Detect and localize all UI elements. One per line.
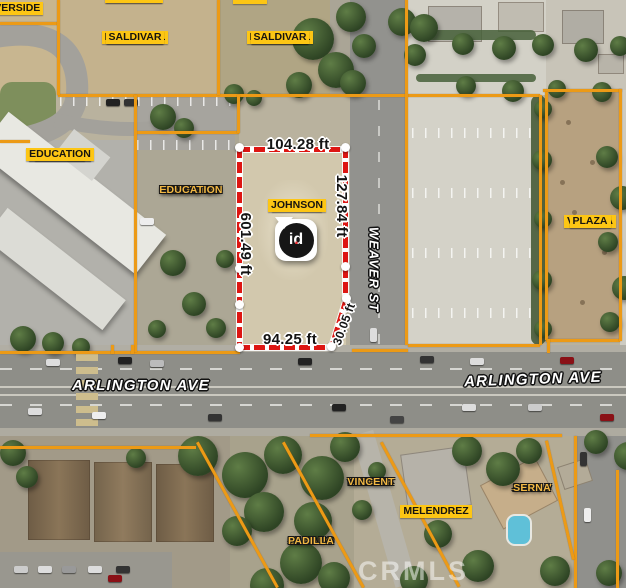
tree: [246, 90, 262, 106]
endpoint-dot: [341, 143, 350, 152]
tree: [452, 33, 474, 55]
label-line: JOHNSON: [268, 199, 326, 212]
car: [580, 452, 587, 466]
car: [150, 360, 164, 367]
tree: [600, 312, 620, 332]
car: [470, 358, 484, 365]
car: [46, 359, 60, 366]
parcel-line: [352, 349, 408, 352]
parcel-line: [619, 89, 622, 341]
parcel-line: [547, 339, 550, 353]
label-line: PLAZA: [570, 215, 611, 228]
parcel-line: [543, 89, 622, 92]
apartment-roof: [156, 464, 214, 542]
parcel-line: [405, 0, 408, 345]
parcel-line: [131, 345, 134, 354]
tree: [486, 452, 520, 486]
dimension-bottom: 94.25 ft: [252, 331, 328, 348]
endpoint-dot: [235, 300, 244, 309]
tree: [610, 36, 626, 56]
tree: [340, 70, 366, 96]
dimension-right: 127.84 ft: [334, 160, 350, 252]
dirt-speckle: [566, 120, 571, 125]
tree: [160, 250, 186, 276]
street-label-weaver: WEAVER ST: [367, 227, 382, 313]
label-line: SERNA: [513, 482, 551, 496]
car: [118, 357, 132, 364]
car: [420, 356, 434, 363]
tree: [574, 38, 598, 62]
car: [106, 99, 120, 106]
car: [208, 414, 222, 421]
parcel-line: [237, 95, 240, 133]
dirt-speckle: [580, 300, 585, 305]
parcel-line: [546, 339, 620, 342]
tree: [534, 320, 552, 338]
parking-stalls: [412, 188, 538, 198]
car: [116, 566, 130, 573]
parcel-line: [111, 345, 114, 354]
label-line: EDUCATION: [26, 148, 94, 161]
tree: [584, 430, 608, 454]
tree: [532, 150, 552, 170]
tree: [540, 556, 570, 586]
tree: [216, 250, 234, 268]
apartment-roof: [28, 460, 90, 540]
label-line: EDUCATION: [159, 184, 222, 198]
parcel-line: [0, 22, 58, 25]
pin-tail: [275, 217, 293, 229]
car: [600, 414, 614, 421]
street-label-arlington-west: ARLINGTON AVE: [72, 377, 210, 394]
tree: [148, 320, 166, 338]
parcel-line: [539, 95, 542, 345]
car: [560, 357, 574, 364]
parcel-line: [58, 94, 540, 97]
car: [28, 408, 42, 415]
car: [140, 218, 154, 225]
tree: [0, 440, 26, 466]
satellite-parcel-map: 104.28 ft 94.25 ft 601.49 ft 127.84 ft 3…: [0, 0, 626, 588]
parking-stalls: [60, 96, 232, 106]
tree: [126, 448, 146, 468]
tree: [410, 14, 438, 42]
parcel-line: [616, 470, 619, 588]
label-line: SALDIVAR: [105, 0, 164, 3]
label-line: VINCENT: [347, 476, 395, 490]
car: [92, 412, 106, 419]
tree: [336, 2, 366, 32]
swimming-pool: [506, 514, 532, 546]
parcel-line: [545, 92, 548, 340]
car: [528, 404, 542, 411]
tree: [352, 500, 372, 520]
parcel-line: [217, 0, 220, 95]
label-line: PADILLA: [288, 535, 334, 549]
car: [584, 508, 591, 522]
label-line: SALDIVAR: [251, 31, 310, 44]
house-roof: [498, 2, 544, 32]
parking-stalls: [412, 128, 538, 138]
car: [108, 575, 122, 582]
label-line: MELENDREZ: [400, 505, 471, 518]
car: [88, 566, 102, 573]
car: [14, 566, 28, 573]
parcel-line: [135, 131, 239, 134]
tree: [592, 82, 612, 102]
parcel-line: [574, 436, 577, 588]
tree: [174, 118, 194, 138]
car: [298, 358, 312, 365]
tree: [452, 436, 482, 466]
car: [332, 404, 346, 411]
dirt-speckle: [560, 180, 565, 185]
parcel-line: [0, 140, 30, 143]
parking-stalls: [137, 140, 233, 150]
car: [38, 566, 52, 573]
label-line: RIVERSIDE: [0, 2, 43, 15]
car: [370, 328, 377, 342]
dimension-left: 601.49 ft: [238, 198, 254, 290]
parcel-line: [57, 0, 60, 95]
tree: [534, 210, 552, 228]
watermark: CRMLS: [358, 556, 469, 587]
parcel-line: [310, 434, 562, 437]
tree: [16, 466, 38, 488]
parcel-line: [0, 446, 196, 449]
tree: [516, 438, 542, 464]
label-line: SUNT: [233, 0, 268, 4]
tree: [534, 100, 552, 118]
endpoint-dot: [235, 143, 244, 152]
parking-stalls: [412, 308, 538, 318]
car: [62, 566, 76, 573]
parcel-line: [0, 351, 240, 354]
tree: [10, 326, 36, 352]
parking-stalls: [412, 248, 538, 258]
endpoint-dot: [235, 343, 244, 352]
tree: [352, 34, 376, 58]
tree: [532, 34, 554, 56]
tree: [318, 562, 350, 588]
tree: [596, 146, 618, 168]
apartment-roof: [94, 462, 152, 542]
tree: [300, 456, 344, 500]
tree: [598, 232, 618, 252]
tree: [150, 104, 176, 130]
tree: [206, 318, 226, 338]
tree: [502, 80, 524, 102]
pin-brand-dot: .: [294, 232, 298, 248]
parcel-line: [134, 95, 137, 352]
car: [462, 404, 476, 411]
tree: [456, 76, 476, 96]
tree: [492, 36, 516, 60]
dirt-speckle: [590, 160, 595, 165]
dimension-top: 104.28 ft: [256, 136, 340, 153]
parcel-line: [408, 344, 540, 347]
car: [390, 416, 404, 423]
house-roof: [598, 54, 624, 74]
endpoint-dot: [341, 262, 350, 271]
tree: [182, 292, 206, 316]
label-line: SALDIVAR: [106, 31, 165, 44]
tree: [532, 270, 552, 290]
